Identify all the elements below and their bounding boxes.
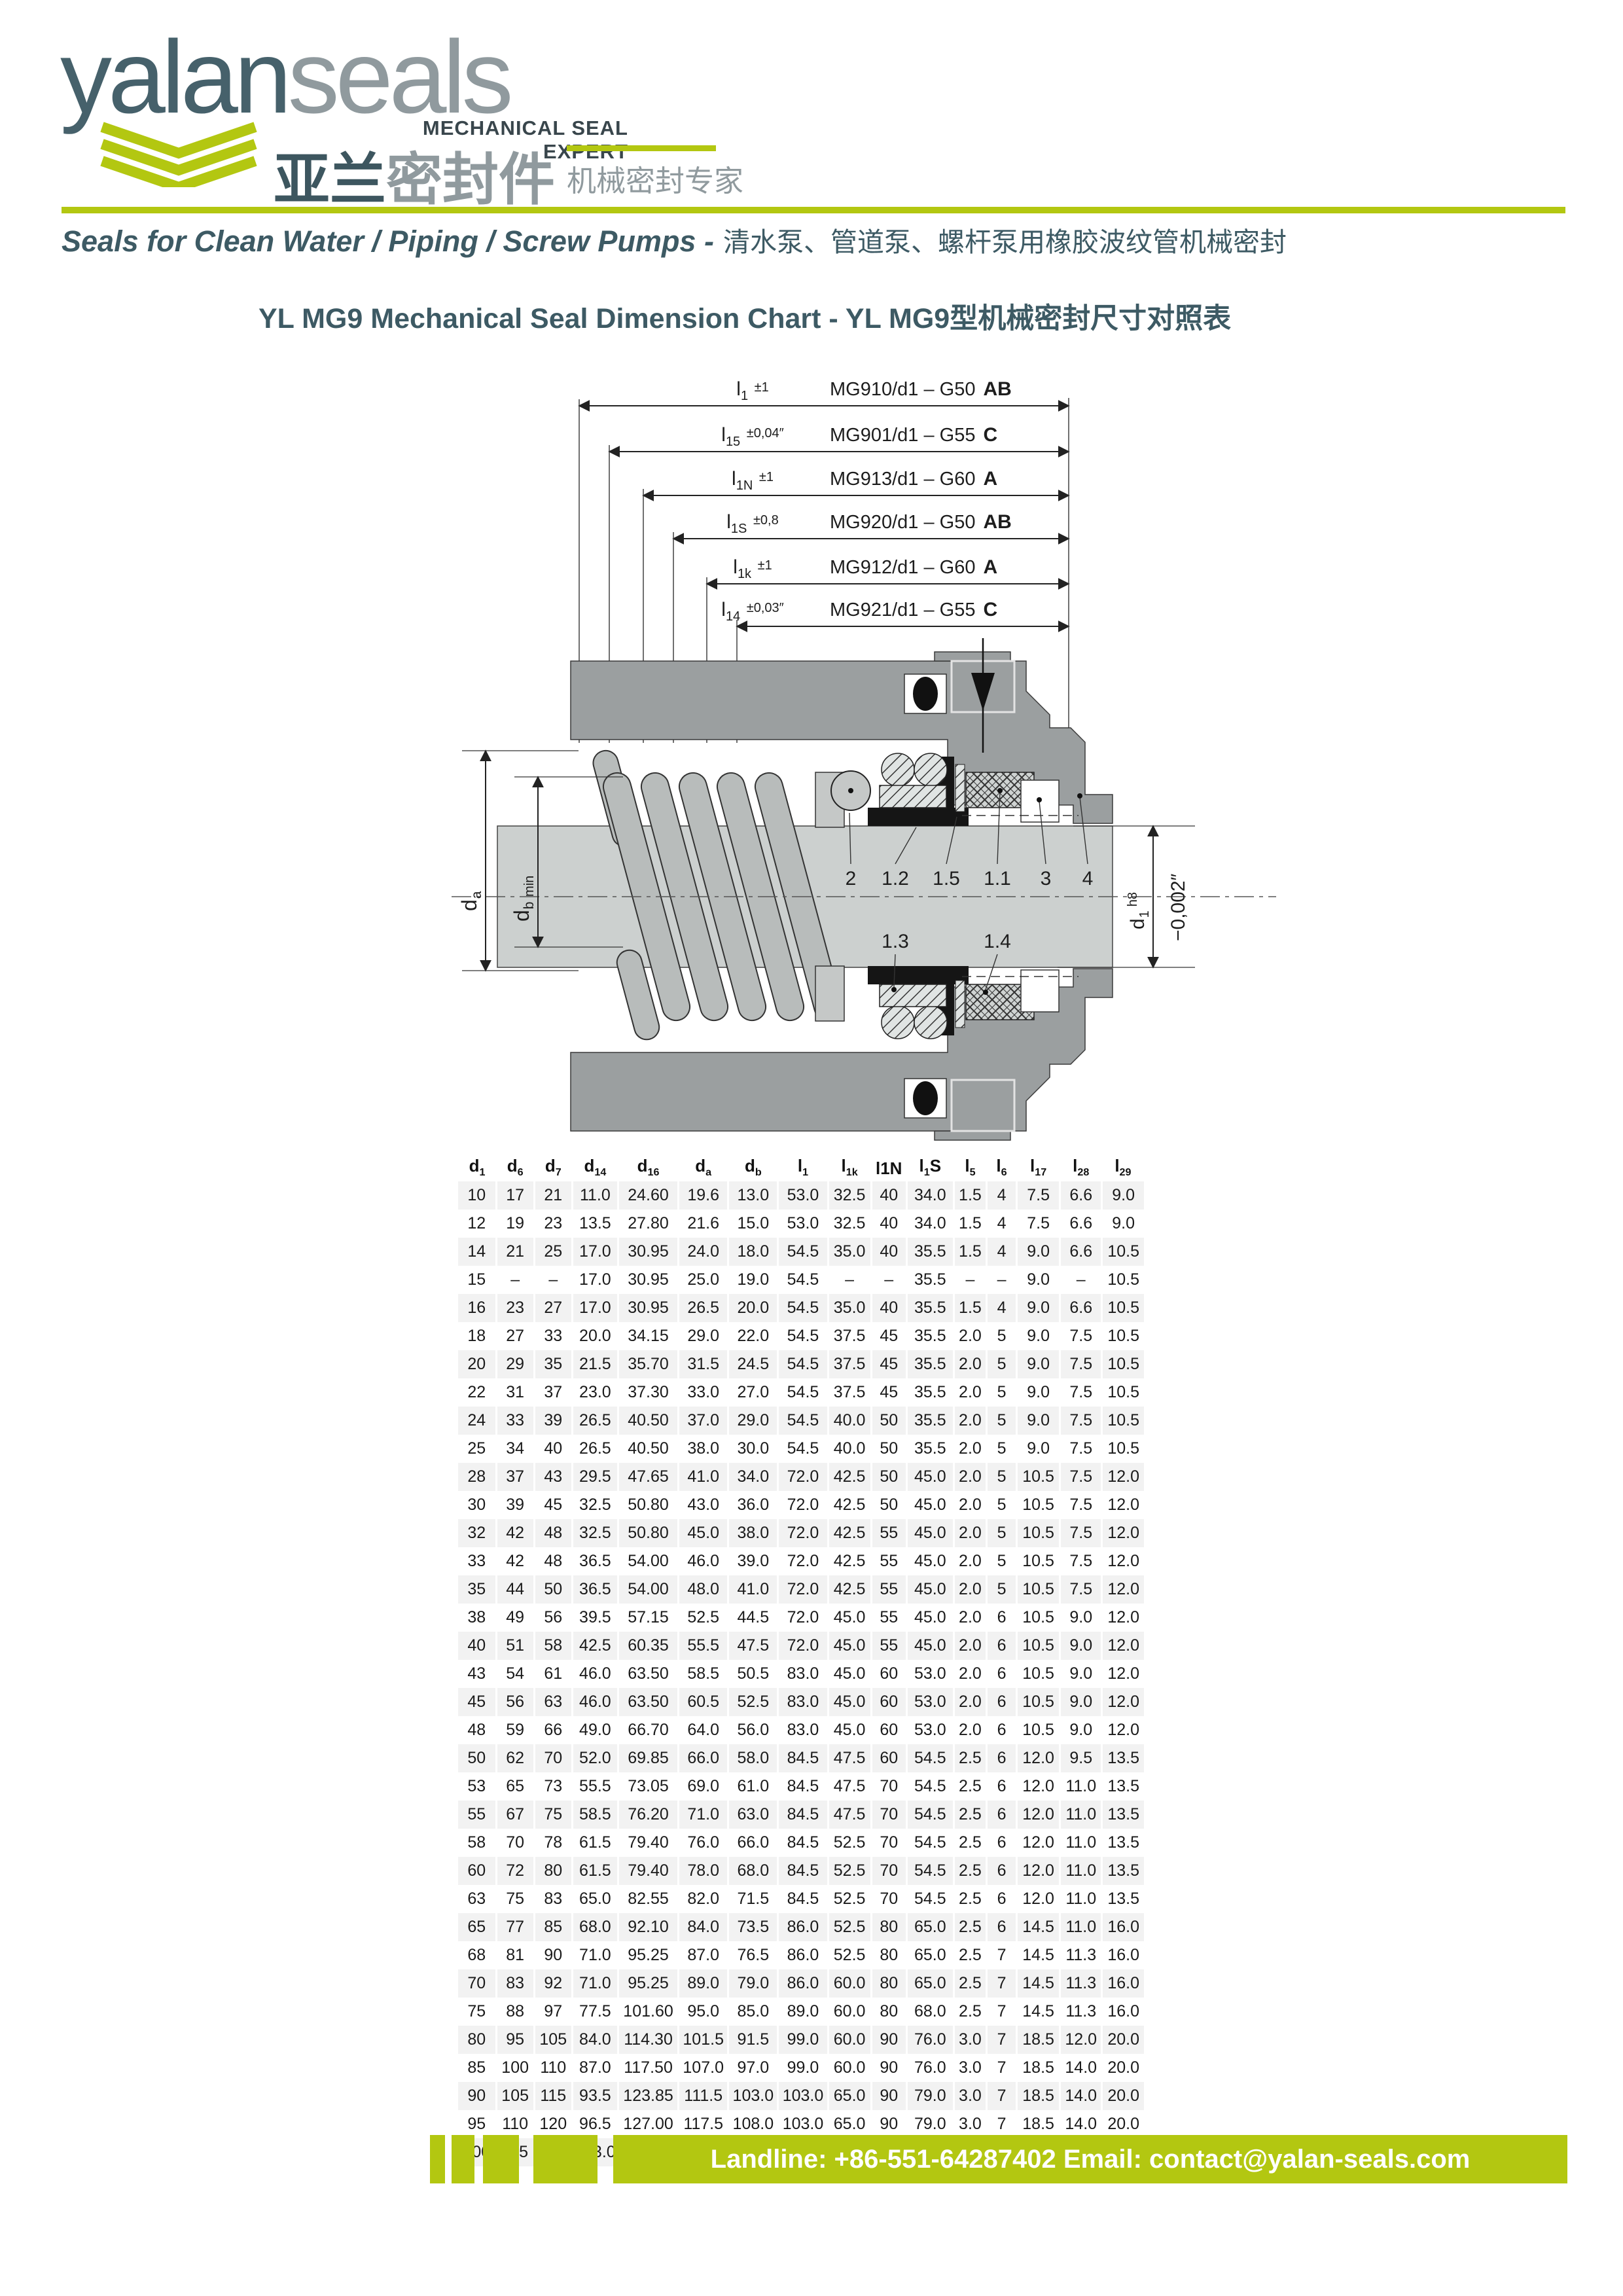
callout-dimension-label: l1S ±0,8 [726,511,778,536]
table-cell: 56.0 [728,1716,778,1744]
table-cell: 2.0 [954,1519,986,1547]
table-cell: 101.60 [618,1998,678,2026]
table-cell: 14.0 [1060,2054,1102,2082]
callout-model-label: MG910/d1 – G50AB [830,378,1012,400]
column-header: l1N [871,1155,906,1181]
callout-model-label: MG912/d1 – G60A [830,556,997,578]
table-cell: 2.0 [954,1378,986,1407]
table-cell: 4 [986,1238,1016,1266]
table-cell: 114.30 [618,2026,678,2054]
table-cell: 45.0 [828,1716,871,1744]
table-cell: 7.5 [1060,1463,1102,1491]
table-cell: 2.0 [954,1716,986,1744]
table-cell: 32.5 [572,1519,618,1547]
table-cell: 2.5 [954,1913,986,1941]
table-cell: 40.0 [828,1407,871,1435]
chevrons-icon [97,122,260,187]
part-label: 4 [1082,868,1094,889]
table-row: 809510584.0114.30101.591.599.060.09076.0… [458,2026,1144,2054]
table-cell: 35.5 [906,1266,954,1294]
table-cell: 43 [534,1463,572,1491]
table-cell: 45.0 [906,1547,954,1575]
table-cell: 51 [496,1632,534,1660]
callout-dimension-label: l1N ±1 [732,468,774,493]
page-title: YL MG9 Mechanical Seal Dimension Chart -… [259,296,1231,336]
table-cell: 85 [458,2054,496,2082]
table-cell: 54.5 [778,1407,828,1435]
column-header: db [728,1155,778,1181]
table-row: 20293521.535.7031.524.554.537.54535.52.0… [458,1350,1144,1378]
table-cell: 12.0 [1102,1716,1144,1744]
table-row: 65778568.092.1084.073.586.052.58065.02.5… [458,1913,1144,1941]
table-cell: 53.0 [778,1210,828,1238]
table-cell: 20.0 [728,1294,778,1322]
table-cell: 55 [458,1801,496,1829]
table-cell: 19.6 [679,1181,728,1210]
table-cell: 66.0 [728,1829,778,1857]
table-cell: 54.5 [906,1829,954,1857]
table-cell: 84.5 [778,1801,828,1829]
table-cell: 10.5 [1017,1575,1060,1604]
table-cell: 45.0 [906,1463,954,1491]
table-cell: 117.50 [618,2054,678,2082]
table-cell: 65.0 [906,1941,954,1969]
table-cell: 22.0 [728,1322,778,1350]
table-cell: 29.0 [679,1322,728,1350]
oring-top [913,677,938,711]
table-cell: 20.0 [572,1322,618,1350]
table-cell: 7.5 [1017,1181,1060,1210]
table-cell: 60.35 [618,1632,678,1660]
table-cell: 58.5 [679,1660,728,1688]
table-cell: 35.5 [906,1350,954,1378]
part-label: 1.5 [933,868,960,889]
table-cell: 2.0 [954,1632,986,1660]
column-header: l5 [954,1155,986,1181]
table-cell: 5 [986,1491,1016,1519]
table-cell: 2.0 [954,1604,986,1632]
table-cell: 16.0 [1102,1998,1144,2026]
table-cell: 5 [986,1575,1016,1604]
table-cell: 32 [458,1519,496,1547]
table-cell: 21 [534,1181,572,1210]
table-cell: 24.5 [728,1350,778,1378]
drive-collar-bottom [815,966,844,1021]
table-cell: 84.0 [572,2026,618,2054]
table-cell: 2.0 [954,1660,986,1688]
table-cell: 10 [458,1181,496,1210]
table-cell: 16 [458,1294,496,1322]
dim-d1-label: d1h8 [1126,892,1152,929]
table-cell: 45 [458,1688,496,1716]
table-cell: 18.5 [1017,2054,1060,2082]
table-cell: 2.5 [954,1829,986,1857]
table-cell: 60 [871,1688,906,1716]
table-cell: 86.0 [778,1941,828,1969]
table-row: 9511012096.5127.00117.5108.0103.065.0907… [458,2110,1144,2138]
brand-primary: yalan [60,20,288,135]
table-cell: 14.5 [1017,1998,1060,2026]
table-cell: 40 [871,1238,906,1266]
table-cell: 39.5 [572,1604,618,1632]
table-cell: 24 [458,1407,496,1435]
table-cell: 2.5 [954,1998,986,2026]
table-row: 63758365.082.5582.071.584.552.57054.52.5… [458,1885,1144,1913]
table-cell: 83 [534,1885,572,1913]
table-cell: 2.5 [954,1801,986,1829]
table-cell: 54.5 [778,1378,828,1407]
spring-wire-section [882,753,914,786]
table-cell: 66.70 [618,1716,678,1744]
table-cell: 60 [871,1660,906,1688]
table-cell: 46.0 [679,1547,728,1575]
table-cell: 6 [986,1829,1016,1857]
table-cell: 52.5 [828,1885,871,1913]
table-cell: 70 [458,1969,496,1998]
table-cell: 58 [458,1829,496,1857]
table-cell: 54 [496,1660,534,1688]
table-cell: 14.5 [1017,1969,1060,1998]
table-cell: 86.0 [778,1913,828,1941]
table-cell: 45.0 [679,1519,728,1547]
table-cell: 84.5 [778,1885,828,1913]
spring-wire-section [914,753,947,786]
table-cell: 9.0 [1102,1181,1144,1210]
table-cell: 78 [534,1829,572,1857]
table-cell: 80 [871,1969,906,1998]
table-cell: 3.0 [954,2026,986,2054]
table-cell: 45.0 [828,1604,871,1632]
table-cell: 6 [986,1604,1016,1632]
table-cell: 27 [534,1294,572,1322]
table-cell: 25.0 [679,1266,728,1294]
table-cell: 54.5 [778,1238,828,1266]
table-cell: 72.0 [778,1463,828,1491]
table-cell: 71.0 [572,1941,618,1969]
table-cell: 85 [534,1913,572,1941]
table-cell: 90 [458,2082,496,2110]
table-cell: 26.5 [572,1407,618,1435]
table-cell: 4 [986,1294,1016,1322]
footer-bar-4 [533,2135,597,2183]
table-cell: 10.5 [1017,1519,1060,1547]
table-cell: 24.60 [618,1181,678,1210]
table-cell: 35.70 [618,1350,678,1378]
table-cell: 53 [458,1772,496,1801]
table-cell: 2.0 [954,1491,986,1519]
table-cell: 27.80 [618,1210,678,1238]
table-cell: 72 [496,1857,534,1885]
table-cell: 38 [458,1604,496,1632]
table-cell: 3.0 [954,2082,986,2110]
table-cell: 10.5 [1017,1491,1060,1519]
column-header: da [679,1155,728,1181]
table-cell: 60.0 [828,1998,871,2026]
table-cell: 65.0 [828,2082,871,2110]
table-cell: 60 [871,1744,906,1772]
table-cell: 97.0 [728,2054,778,2082]
table-cell: 2.0 [954,1688,986,1716]
table-cell: 50 [871,1491,906,1519]
table-cell: 76.0 [906,2026,954,2054]
table-cell: 63.50 [618,1660,678,1688]
table-cell: 7.5 [1060,1435,1102,1463]
table-cell: 11.0 [572,1181,618,1210]
table-cell: 7 [986,1998,1016,2026]
table-cell: 50 [871,1435,906,1463]
table-cell: 80 [534,1857,572,1885]
table-cell: 35 [534,1350,572,1378]
table-cell: 42.5 [572,1632,618,1660]
table-cell: 60.0 [828,2054,871,2082]
table-cell: 2.5 [954,1885,986,1913]
table-cell: 45.0 [906,1519,954,1547]
table-cell: 13.5 [1102,1885,1144,1913]
table-cell: 54.5 [778,1322,828,1350]
table-cell: 12.0 [1017,1801,1060,1829]
table-cell: 70 [871,1885,906,1913]
callout-dimension-label: l1k ±1 [733,556,772,581]
table-cell: 42 [496,1547,534,1575]
table-cell: 84.5 [778,1857,828,1885]
table-cell: 45.0 [828,1632,871,1660]
table-cell: 105 [534,2026,572,2054]
table-cell: 83.0 [778,1660,828,1688]
table-cell: – [496,1266,534,1294]
table-cell: 83 [496,1969,534,1998]
table-cell: 9.0 [1060,1632,1102,1660]
table-row: 8510011087.0117.50107.097.099.060.09076.… [458,2054,1144,2082]
table-cell: 12.0 [1017,1885,1060,1913]
table-cell: 111.5 [679,2082,728,2110]
table-cell: 34.0 [728,1463,778,1491]
table-cell: 72.0 [778,1547,828,1575]
table-row: 15––17.030.9525.019.054.5––35.5––9.0–10.… [458,1266,1144,1294]
table-cell: 105 [496,2082,534,2110]
table-cell: 2.0 [954,1435,986,1463]
table-cell: 1.5 [954,1294,986,1322]
table-cell: 70 [871,1801,906,1829]
table-cell: 54.00 [618,1547,678,1575]
table-cell: 10.5 [1017,1688,1060,1716]
table-cell: 52.5 [828,1829,871,1857]
callout-model-label: MG920/d1 – G50AB [830,511,1012,533]
table-cell: 2.5 [954,1772,986,1801]
table-cell: 63 [534,1688,572,1716]
table-cell: 78.0 [679,1857,728,1885]
table-cell: 70 [496,1829,534,1857]
table-cell: 29 [496,1350,534,1378]
table-cell: 49.0 [572,1716,618,1744]
table-cell: 23 [496,1294,534,1322]
table-cell: 53.0 [906,1660,954,1688]
table-cell: 2.0 [954,1322,986,1350]
table-cell: 71.5 [728,1885,778,1913]
table-cell: 53.0 [906,1716,954,1744]
table-cell: 7 [986,2082,1016,2110]
table-cell: 17.0 [572,1294,618,1322]
footer-bar-1 [430,2135,445,2183]
table-cell: 52.5 [828,1913,871,1941]
table-cell: 127.00 [618,2110,678,2138]
table-cell: 11.0 [1060,1885,1102,1913]
logo-underline [567,145,716,151]
table-cell: 54.5 [778,1435,828,1463]
column-header: d7 [534,1155,572,1181]
table-cell: 6 [986,1660,1016,1688]
table-cell: 17.0 [572,1266,618,1294]
table-cell: 41.0 [679,1463,728,1491]
column-header: l17 [1017,1155,1060,1181]
column-header: l6 [986,1155,1016,1181]
table-row: 50627052.069.8566.058.084.547.56054.52.5… [458,1744,1144,1772]
table-cell: 19 [496,1210,534,1238]
table-cell: 76.0 [679,1829,728,1857]
table-cell: 6 [986,1772,1016,1801]
table-cell: 58.5 [572,1801,618,1829]
table-cell: 35.5 [906,1238,954,1266]
table-cell: 6.6 [1060,1210,1102,1238]
oring-bottom [913,1081,938,1115]
table-cell: 115 [534,2082,572,2110]
table-cell: 43 [458,1660,496,1688]
table-cell: 13.5 [1102,1801,1144,1829]
table-cell: 21.5 [572,1350,618,1378]
table-row: 58707861.579.4076.066.084.552.57054.52.5… [458,1829,1144,1857]
table-cell: 66 [534,1716,572,1744]
dim-d1-tolerance-label: −0,002″ [1168,873,1189,941]
table-cell: 48 [534,1547,572,1575]
table-cell: 52.5 [679,1604,728,1632]
table-cell: 9.0 [1060,1660,1102,1688]
table-cell: 60 [458,1857,496,1885]
table-cell: 69.0 [679,1772,728,1801]
table-cell: 55 [871,1575,906,1604]
table-cell: 71.0 [572,1969,618,1998]
table-cell: 11.0 [1060,1801,1102,1829]
table-cell: 92 [534,1969,572,1998]
table-cell: 80 [458,2026,496,2054]
table-cell: 12.0 [1102,1660,1144,1688]
table-cell: 4 [986,1210,1016,1238]
table-cell: 95.25 [618,1941,678,1969]
table-cell: 19.0 [728,1266,778,1294]
seal-cross-section-diagram: l1 ±1MG910/d1 – G50ABl15 ±0,04″MG901/d1 … [406,357,1361,1149]
table-cell: 31 [496,1378,534,1407]
table-cell: 45.0 [906,1632,954,1660]
table-cell: 6 [986,1857,1016,1885]
table-cell: 21.6 [679,1210,728,1238]
table-cell: 82.0 [679,1885,728,1913]
table-cell: 12.0 [1102,1688,1144,1716]
table-cell: 37.30 [618,1378,678,1407]
table-cell: 15.0 [728,1210,778,1238]
table-cell: 6 [986,1632,1016,1660]
table-cell: 63 [458,1885,496,1913]
table-cell: 11.0 [1060,1857,1102,1885]
table-cell: 103.0 [778,2082,828,2110]
table-cell: 7.5 [1060,1407,1102,1435]
table-cell: 16.0 [1102,1941,1144,1969]
table-cell: 90 [871,2026,906,2054]
table-cell: 45.0 [906,1491,954,1519]
table-cell: 40 [871,1210,906,1238]
table-cell: 9.0 [1017,1322,1060,1350]
table-cell: 23 [534,1210,572,1238]
table-cell: 34.15 [618,1322,678,1350]
table-cell: 52.0 [572,1744,618,1772]
table-row: 48596649.066.7064.056.083.045.06053.02.0… [458,1716,1144,1744]
table-cell: 85.0 [728,1998,778,2026]
table-cell: 88 [496,1998,534,2026]
table-cell: 35.5 [906,1407,954,1435]
table-cell: 7 [986,2054,1016,2082]
table-cell: 68.0 [728,1857,778,1885]
table-cell: 77 [496,1913,534,1941]
table-cell: 7.5 [1060,1322,1102,1350]
table-cell: 65.0 [906,1969,954,1998]
table-cell: 91.5 [728,2026,778,2054]
table-cell: 9.0 [1017,1294,1060,1322]
table-cell: 64.0 [679,1716,728,1744]
table-row: 68819071.095.2587.076.586.052.58065.02.5… [458,1941,1144,1969]
table-cell: 83.0 [778,1716,828,1744]
table-cell: 12 [458,1210,496,1238]
table-cell: 42.5 [828,1491,871,1519]
table-cell: 50.5 [728,1660,778,1688]
table-cell: 14.5 [1017,1913,1060,1941]
table-cell: 45.0 [828,1660,871,1688]
table-cell: 35.5 [906,1435,954,1463]
table-cell: 27.0 [728,1378,778,1407]
table-cell: 35.0 [828,1294,871,1322]
table-cell: 9.0 [1017,1435,1060,1463]
table-cell: 32.5 [828,1181,871,1210]
table-cell: 14 [458,1238,496,1266]
table-cell: 36.0 [728,1491,778,1519]
table-cell: 9.0 [1060,1688,1102,1716]
table-cell: 12.0 [1060,2026,1102,2054]
pusher-ring-top [955,764,965,812]
part-label: 1.2 [882,868,909,889]
table-cell: 48 [534,1519,572,1547]
table-cell: 97 [534,1998,572,2026]
table-cell: 38.0 [728,1519,778,1547]
part-label: 1.4 [984,931,1011,952]
table-cell: 37.5 [828,1322,871,1350]
table-cell: 72.0 [778,1604,828,1632]
part-label: 1.3 [882,931,909,952]
table-row: 53657355.573.0569.061.084.547.57054.52.5… [458,1772,1144,1801]
callout-model-label: MG913/d1 – G60A [830,468,997,490]
callout-dimension-label: l14 ±0,03″ [721,599,783,624]
table-cell: 71.0 [679,1801,728,1829]
footer-contact: Landline: +86-551-64287402 Email: contac… [613,2135,1567,2183]
table-cell: 55 [871,1632,906,1660]
table-cell: 25 [458,1435,496,1463]
table-cell: 7.5 [1060,1491,1102,1519]
table-cell: 120 [534,2110,572,2138]
table-cell: 65.0 [572,1885,618,1913]
table-cell: 2.5 [954,1857,986,1885]
table-cell: 72.0 [778,1519,828,1547]
table-cell: 70 [871,1829,906,1857]
table-cell: – [828,1266,871,1294]
table-cell: 12.0 [1102,1547,1144,1575]
table-cell: 24.0 [679,1238,728,1266]
table-row: 60728061.579.4078.068.084.552.57054.52.5… [458,1857,1144,1885]
table-cell: 87.0 [679,1941,728,1969]
